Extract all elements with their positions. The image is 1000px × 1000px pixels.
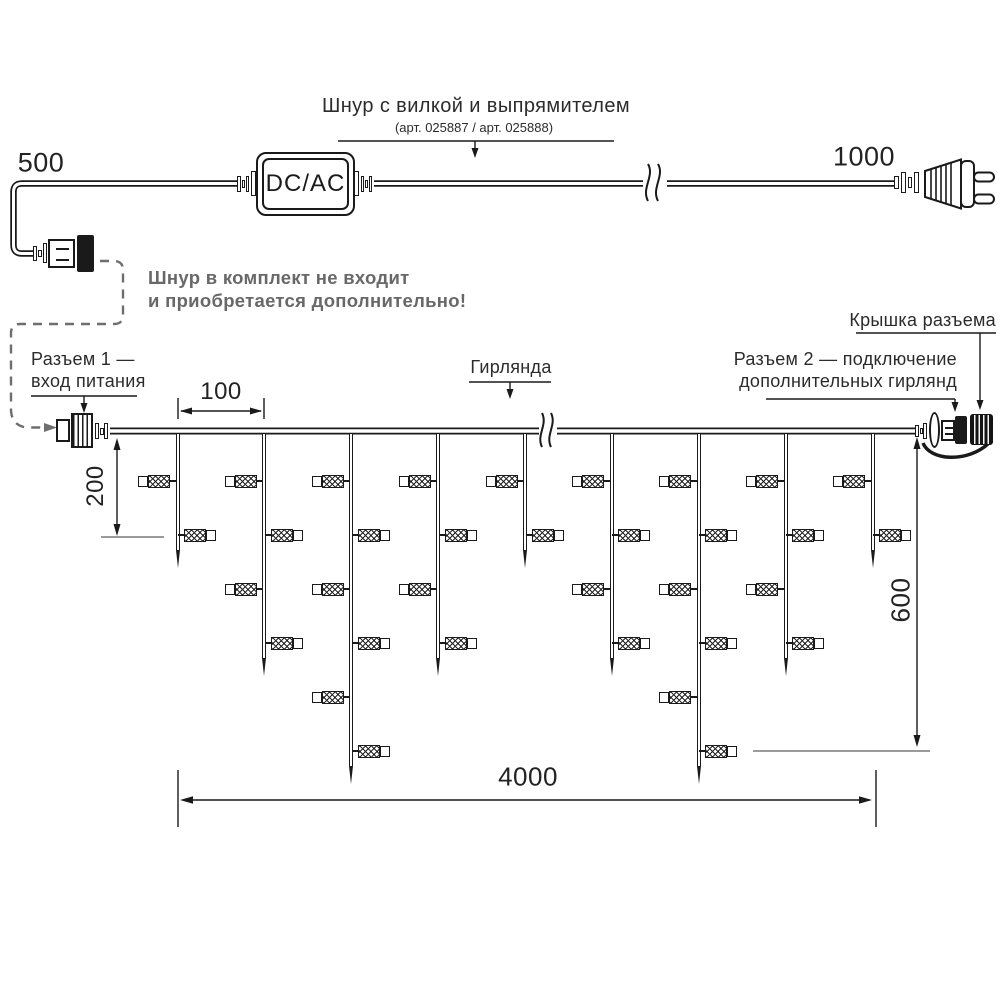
lamp	[138, 474, 176, 488]
cord-subtitle: (арт. 025887 / арт. 025888)	[395, 120, 553, 135]
connector2-label: Разъем 2 — подключение дополнительных ги…	[716, 349, 957, 392]
lamp-body	[235, 583, 257, 596]
lamp	[659, 582, 697, 596]
lamp-cap	[467, 638, 477, 649]
cord-connector-cap	[77, 235, 94, 272]
power-cable	[14, 184, 897, 254]
dim-label-600: 600	[886, 578, 917, 623]
dim-label-100: 100	[200, 378, 242, 406]
cord-connector-clamp	[43, 243, 47, 263]
lamp	[659, 690, 697, 704]
lamp-cap	[727, 746, 737, 757]
lamp-stub	[691, 588, 697, 591]
lamp-cap	[727, 530, 737, 541]
lamp-stub	[257, 480, 263, 483]
connector1-cap	[56, 419, 70, 442]
lamp-body	[445, 637, 467, 650]
lamp-cap	[312, 692, 322, 703]
garland-drop-tip	[523, 550, 527, 568]
lamp-cap	[399, 584, 409, 595]
converter-right-clamp	[369, 176, 373, 192]
lamp-body	[271, 529, 293, 542]
lamp-cap	[293, 530, 303, 541]
lamp-body	[358, 637, 380, 650]
lamp-body	[792, 529, 814, 542]
lamp-body	[756, 475, 778, 488]
not-included-note: Шнур в комплект не входит и приобретаетс…	[148, 267, 466, 312]
lamp-cap	[901, 530, 911, 541]
connector2-clamp	[923, 423, 927, 439]
lamp	[746, 582, 784, 596]
lamp-stub	[778, 588, 784, 591]
garland-drop-tip	[610, 658, 614, 676]
note-line2: и приобретается дополнительно!	[148, 290, 466, 313]
lamp	[786, 636, 824, 650]
lamp-body	[148, 475, 170, 488]
lamp	[833, 474, 871, 488]
lamp-stub	[257, 588, 263, 591]
cord-title: Шнур с вилкой и выпрямителем	[322, 95, 630, 118]
lamp-cap	[659, 692, 669, 703]
lamp	[399, 474, 437, 488]
lamp	[439, 636, 477, 650]
lamp-body	[358, 745, 380, 758]
connector2-body	[941, 420, 955, 441]
lamp-cap	[380, 530, 390, 541]
lamp-cap	[380, 746, 390, 757]
lamp-body	[532, 529, 554, 542]
connector2-cap	[970, 414, 993, 445]
lamp	[265, 636, 303, 650]
lamp	[486, 474, 524, 488]
lamp-body	[358, 529, 380, 542]
lamp-body	[756, 583, 778, 596]
lamp-stub	[518, 480, 524, 483]
lamp-body	[235, 475, 257, 488]
lamp-body	[879, 529, 901, 542]
lamp	[178, 528, 216, 542]
lamp-cap	[814, 530, 824, 541]
lamp	[312, 582, 350, 596]
lamp-body	[322, 691, 344, 704]
lamp	[225, 474, 263, 488]
dc-ac-label: DC/AC	[262, 158, 349, 210]
lamp-stub	[344, 480, 350, 483]
lamp-cap	[833, 476, 843, 487]
lamp-cap	[572, 584, 582, 595]
lamp	[612, 528, 650, 542]
lamp-cap	[554, 530, 564, 541]
lamp-body	[322, 475, 344, 488]
lamp-cap	[467, 530, 477, 541]
lamp-body	[271, 637, 293, 650]
lamp-cap	[640, 638, 650, 649]
diagram-canvas: DC/AC 500 1000 Шнур с вилкой и выпрямите…	[0, 0, 1000, 1000]
lamp-cap	[572, 476, 582, 487]
converter-left-clamp	[237, 176, 241, 192]
garland-drop	[349, 434, 353, 766]
cap-label: Крышка разъема	[756, 309, 996, 331]
converter-right-plate	[354, 171, 359, 196]
lamp	[699, 744, 737, 758]
lamp-cap	[138, 476, 148, 487]
lamp	[699, 636, 737, 650]
lamp-stub	[344, 588, 350, 591]
lamp	[659, 474, 697, 488]
lamp	[265, 528, 303, 542]
lamp	[746, 474, 784, 488]
lamp	[439, 528, 477, 542]
garland-drop	[784, 434, 788, 658]
connector1-clamp	[95, 423, 99, 439]
cord-length-right-label: 1000	[833, 142, 895, 173]
lamp-body	[582, 475, 604, 488]
lamp	[312, 690, 350, 704]
converter-left-plate	[251, 171, 256, 196]
lamp	[312, 474, 350, 488]
lamp-cap	[746, 584, 756, 595]
lamp	[572, 582, 610, 596]
converter-left-clamp	[242, 180, 246, 188]
lamp	[572, 474, 610, 488]
garland-drop-tip	[871, 550, 875, 568]
lamp	[786, 528, 824, 542]
lamp-cap	[659, 584, 669, 595]
lamp-cap	[727, 638, 737, 649]
lamp-body	[792, 637, 814, 650]
lamp-body	[705, 637, 727, 650]
lamp	[399, 582, 437, 596]
lamp-body	[445, 529, 467, 542]
lamp-body	[409, 475, 431, 488]
lamp-body	[669, 691, 691, 704]
lamp-stub	[431, 480, 437, 483]
lamp-body	[184, 529, 206, 542]
garland-drop	[697, 434, 701, 766]
garland-label: Гирлянда	[470, 356, 551, 378]
cord-connector-body	[48, 239, 75, 268]
lamp	[612, 636, 650, 650]
lamp-cap	[225, 476, 235, 487]
lamp-body	[618, 529, 640, 542]
lamp-stub	[431, 588, 437, 591]
power-plug	[925, 160, 994, 209]
lamp	[873, 528, 911, 542]
lamp-cap	[486, 476, 496, 487]
lamp-cap	[814, 638, 824, 649]
lamp-stub	[604, 588, 610, 591]
lamp-body	[705, 745, 727, 758]
lamp-cap	[380, 638, 390, 649]
lamp-body	[618, 637, 640, 650]
garland-drop-tip	[262, 658, 266, 676]
lamp-body	[669, 583, 691, 596]
cord-connector-clamp	[38, 250, 42, 257]
plug-clamp	[908, 177, 912, 188]
connector2-clamp	[915, 425, 919, 437]
connector2-ring	[929, 412, 940, 448]
lamp	[225, 582, 263, 596]
dc-ac-converter: DC/AC	[256, 152, 355, 216]
garland-drop-tip	[784, 658, 788, 676]
garland-drop-tip	[349, 766, 353, 784]
lamp-body	[409, 583, 431, 596]
garland-drop	[436, 434, 440, 658]
cord-title-leader	[338, 141, 614, 158]
lamp-cap	[746, 476, 756, 487]
converter-left-clamp	[246, 176, 250, 192]
garland-drop	[610, 434, 614, 658]
lamp-cap	[225, 584, 235, 595]
garland-drop-tip	[436, 658, 440, 676]
garland-drop	[262, 434, 266, 658]
connector1-body	[71, 413, 93, 448]
plug-clamp	[894, 176, 899, 189]
lamp-body	[496, 475, 518, 488]
lamp-stub	[344, 696, 350, 699]
lamp	[352, 636, 390, 650]
connector2-leader	[766, 399, 959, 412]
lamp	[526, 528, 564, 542]
plug-clamp	[914, 172, 919, 193]
lamp-stub	[604, 480, 610, 483]
lamp-body	[582, 583, 604, 596]
garland-break-icon	[540, 413, 552, 447]
cord-connector-clamp	[33, 246, 37, 261]
lamp	[352, 744, 390, 758]
lamp-body	[322, 583, 344, 596]
garland-drop-tip	[697, 766, 701, 784]
lamp-cap	[312, 476, 322, 487]
converter-right-clamp	[365, 180, 369, 188]
connector1-leader	[31, 396, 137, 413]
converter-right-clamp	[361, 176, 365, 192]
lamp-stub	[778, 480, 784, 483]
plug-clamp	[901, 172, 906, 193]
dim-label-4000: 4000	[498, 762, 558, 793]
not-included-dashed-path	[11, 261, 123, 432]
connector1-label: Разъем 1 — вход питания	[31, 348, 146, 392]
lamp	[699, 528, 737, 542]
connector1-clamp	[100, 428, 104, 435]
lamp-body	[669, 475, 691, 488]
lamp-stub	[865, 480, 871, 483]
garland-drop-tip	[176, 550, 180, 568]
lamp-cap	[640, 530, 650, 541]
lamp-cap	[206, 530, 216, 541]
note-line1: Шнур в комплект не входит	[148, 267, 466, 290]
garland-label-leader	[469, 382, 551, 399]
lamp-body	[705, 529, 727, 542]
connector2-socket	[955, 416, 967, 444]
lamp-cap	[659, 476, 669, 487]
dim-label-200: 200	[82, 465, 110, 507]
lamp	[352, 528, 390, 542]
lamp-stub	[691, 696, 697, 699]
lamp-cap	[293, 638, 303, 649]
connector1-clamp	[104, 423, 108, 439]
lamp-stub	[691, 480, 697, 483]
cord-length-left-label: 500	[18, 148, 65, 179]
lamp-stub	[170, 480, 176, 483]
lamp-cap	[312, 584, 322, 595]
cable-break-icon	[646, 164, 660, 201]
lamp-body	[843, 475, 865, 488]
lamp-cap	[399, 476, 409, 487]
